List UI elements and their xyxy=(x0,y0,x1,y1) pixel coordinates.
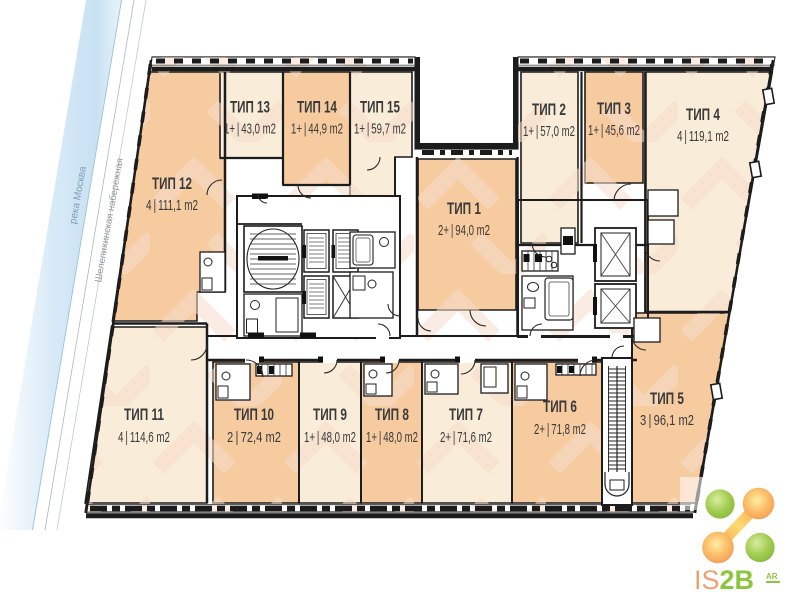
svg-text:ТИП 2: ТИП 2 xyxy=(532,101,566,119)
svg-text:4 | 114,6 m2: 4 | 114,6 m2 xyxy=(118,429,170,446)
svg-text:ТИП 1: ТИП 1 xyxy=(447,200,481,218)
svg-text:1+ | 59,7 m2: 1+ | 59,7 m2 xyxy=(354,121,406,138)
svg-text:1+ | 43,0 m2: 1+ | 43,0 m2 xyxy=(224,121,276,138)
svg-text:ТИП 5: ТИП 5 xyxy=(650,390,684,408)
svg-text:2+ | 71,8 m2: 2+ | 71,8 m2 xyxy=(534,421,586,438)
svg-text:2+ | 94,0 m2: 2+ | 94,0 m2 xyxy=(438,222,490,239)
svg-text:1+ | 45,6 m2: 1+ | 45,6 m2 xyxy=(588,122,640,139)
svg-text:ТИП 7: ТИП 7 xyxy=(449,406,483,424)
svg-text:ТИП 9: ТИП 9 xyxy=(313,406,347,424)
svg-text:4 | 119,1 m2: 4 | 119,1 m2 xyxy=(677,128,729,145)
svg-text:ТИП 6: ТИП 6 xyxy=(543,398,577,416)
svg-text:1+ | 44,9 m2: 1+ | 44,9 m2 xyxy=(291,121,343,138)
svg-text:ТИП 14: ТИП 14 xyxy=(297,99,338,117)
svg-text:ТИП 13: ТИП 13 xyxy=(230,99,270,117)
svg-text:ТИП 3: ТИП 3 xyxy=(597,100,631,118)
svg-text:1+ | 48,0 m2: 1+ | 48,0 m2 xyxy=(366,429,418,446)
svg-text:3 | 96,1 m2: 3 | 96,1 m2 xyxy=(640,412,694,429)
svg-text:ТИП 12: ТИП 12 xyxy=(152,175,192,193)
svg-text:ТИП 8: ТИП 8 xyxy=(375,406,409,424)
svg-text:ТИП 15: ТИП 15 xyxy=(360,99,400,117)
svg-text:4 | 111,1 m2: 4 | 111,1 m2 xyxy=(146,197,198,214)
svg-text:1+ | 57,0 m2: 1+ | 57,0 m2 xyxy=(523,123,575,140)
svg-text:1+ | 48,0 m2: 1+ | 48,0 m2 xyxy=(304,429,356,446)
svg-text:IS2B: IS2B xyxy=(694,565,754,595)
svg-text:AR: AR xyxy=(766,572,778,581)
svg-text:2+ | 71,6 m2: 2+ | 71,6 m2 xyxy=(440,429,492,446)
svg-text:2 | 72,4 m2: 2 | 72,4 m2 xyxy=(227,429,281,446)
svg-text:ТИП 10: ТИП 10 xyxy=(234,406,274,424)
svg-text:ТИП 11: ТИП 11 xyxy=(124,406,164,424)
svg-text:ТИП 4: ТИП 4 xyxy=(686,106,721,124)
